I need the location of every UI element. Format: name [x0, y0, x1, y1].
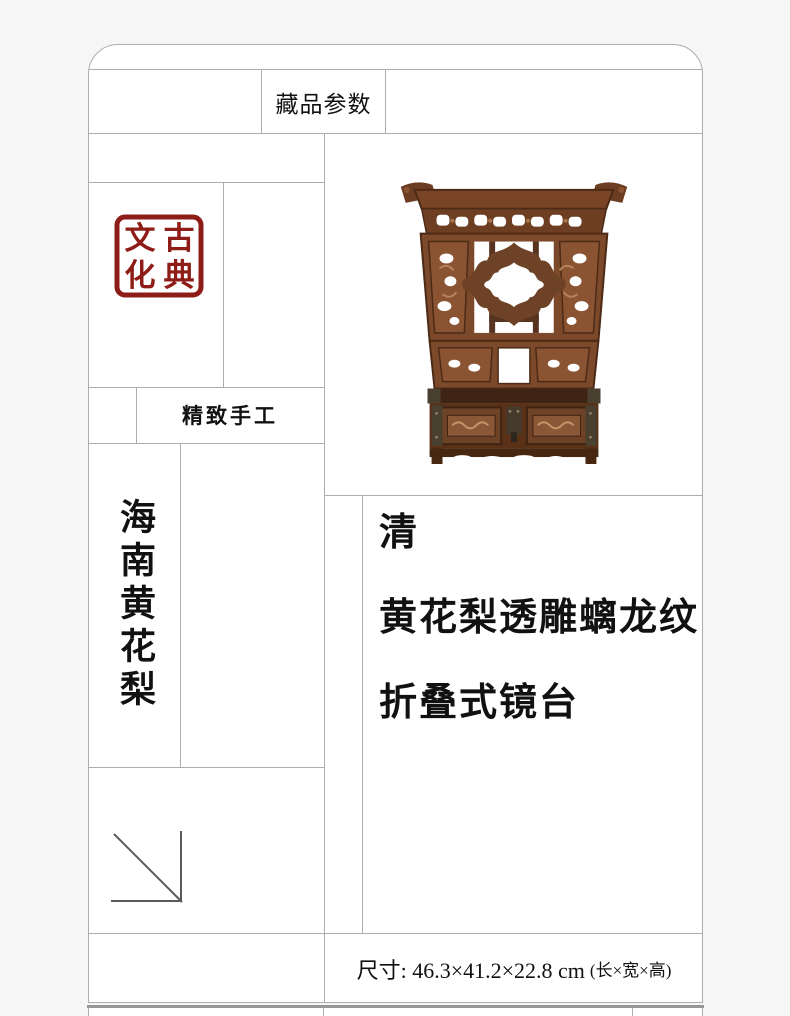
dimensions-note: (长×宽×高) [590, 956, 672, 981]
crest-rail [415, 190, 614, 234]
section-title-label: 藏品参数 [276, 85, 372, 119]
seal-char: 古 [164, 221, 195, 256]
brand-seal-icon: 文 古 化 典 [113, 213, 205, 299]
lower-frame [430, 341, 599, 389]
seal-char: 典 [164, 258, 195, 293]
material-label: 海南黄花梨 [89, 443, 181, 767]
divider [223, 182, 224, 388]
handcraft-label: 精致手工 [136, 387, 324, 443]
dimensions-value: 尺寸: 46.3×41.2×22.8 cm [357, 953, 585, 985]
section-title: 藏品参数 [262, 70, 385, 133]
product-title-line1: 黄花梨透雕螭龙纹 [379, 576, 699, 661]
seal-char: 文 [125, 221, 156, 256]
divider [89, 182, 324, 183]
page-background: 藏品参数 文 古 化 典 精致手工 海南黄花梨 [0, 0, 790, 1016]
divider [89, 69, 702, 70]
collection-card: 藏品参数 文 古 化 典 精致手工 海南黄花梨 [88, 44, 703, 1003]
product-dynasty: 清 [379, 491, 699, 576]
divider [89, 767, 324, 768]
divider [323, 1008, 324, 1016]
divider [89, 133, 702, 134]
divider [88, 1008, 89, 1016]
product-title-line2: 折叠式镜台 [379, 661, 699, 746]
upper-frame [421, 234, 608, 341]
dimensions-row: 尺寸: 46.3×41.2×22.8 cm (长×宽×高) [325, 934, 703, 1003]
chest-box [428, 389, 601, 465]
divider [324, 133, 325, 1002]
divider [702, 1008, 703, 1016]
corner-arrow-icon [109, 827, 191, 909]
divider [385, 69, 386, 133]
next-section-strip [88, 1008, 703, 1016]
product-title-block: 清 黄花梨透雕螭龙纹 折叠式镜台 [363, 491, 699, 746]
product-image [394, 177, 634, 465]
divider [632, 1008, 633, 1016]
seal-char: 化 [125, 258, 156, 293]
